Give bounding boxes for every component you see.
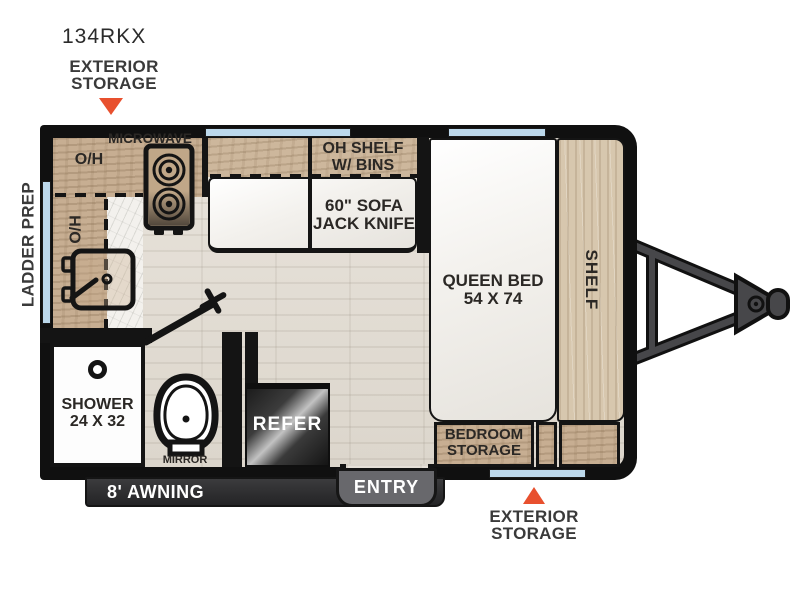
window [490,470,585,477]
sofa-label: 60" SOFA JACK KNIFE [310,197,418,233]
oh-shelf-label: OH SHELF W/ BINS [312,141,414,175]
cabinet [536,422,557,467]
callout-line: EXTERIOR [54,58,174,75]
wall-stub-refer [245,332,258,387]
shower-head-icon [88,360,107,379]
shower-label: SHOWER 24 X 32 [50,397,145,431]
window [449,129,545,136]
bedroom-storage-label: BEDROOM STORAGE [434,427,534,459]
door-icon [133,285,233,350]
queen-bed-label: QUEEN BED 54 X 74 [429,272,557,308]
ladder-prep-label: LADDER PREP [20,165,37,325]
mirror-label: MIRROR [140,455,230,467]
floorplan: MICROWAVE O/H O/H [40,125,637,480]
model-number: 134RKX [62,25,146,49]
overhead-cabinet-dashed-line [55,193,143,197]
arrow-up-icon [523,487,545,504]
overhead-cabinet-label: O/H [67,152,111,169]
callout-line: STORAGE [474,525,594,542]
floorplan-page: 134RKX EXTERIOR STORAGE LADDER PREP MICR… [0,0,800,600]
callout-line: EXTERIOR [474,508,594,525]
exterior-storage-callout-top: EXTERIOR STORAGE [54,58,174,92]
shelf-label: SHELF [582,235,600,325]
toilet-icon [150,372,222,460]
entry-tab: ENTRY [336,468,437,507]
cabinet [559,422,620,467]
exterior-storage-callout-bottom: EXTERIOR STORAGE [474,508,594,542]
window [43,182,50,323]
sink-icon [60,248,136,312]
refer-label: REFER [245,415,330,435]
trailer-hitch-icon [618,226,790,378]
window [206,129,350,136]
wall-stub-bedroom [417,137,429,253]
entry-label: ENTRY [354,477,419,497]
stove-icon [143,143,195,237]
arrow-down-icon [99,98,123,115]
bathroom-divider-wall [222,332,242,467]
callout-line: STORAGE [54,75,174,92]
awning-label: 8' AWNING [107,479,204,505]
